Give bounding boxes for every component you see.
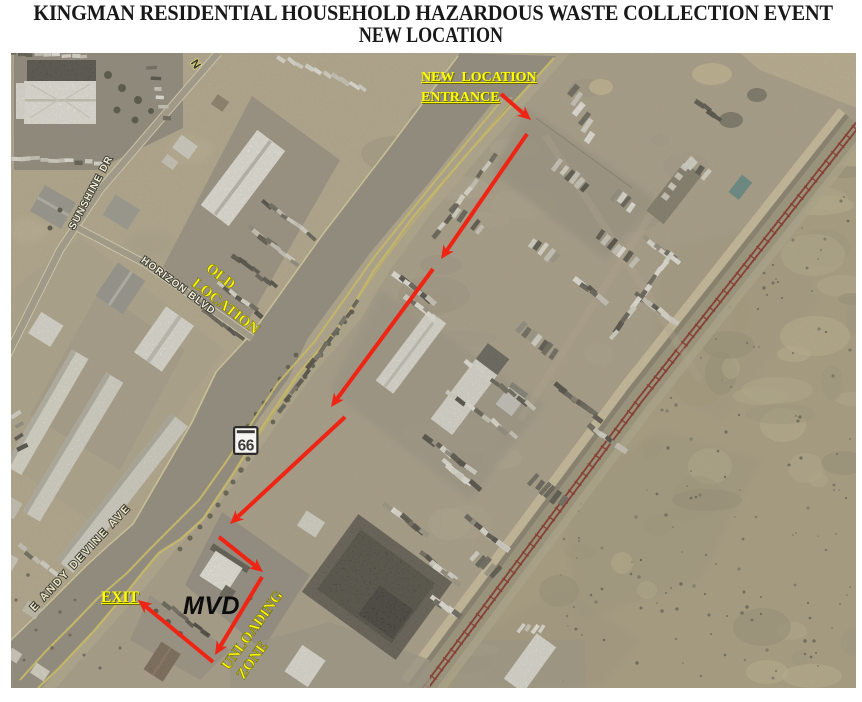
svg-text:66: 66 — [238, 438, 255, 455]
